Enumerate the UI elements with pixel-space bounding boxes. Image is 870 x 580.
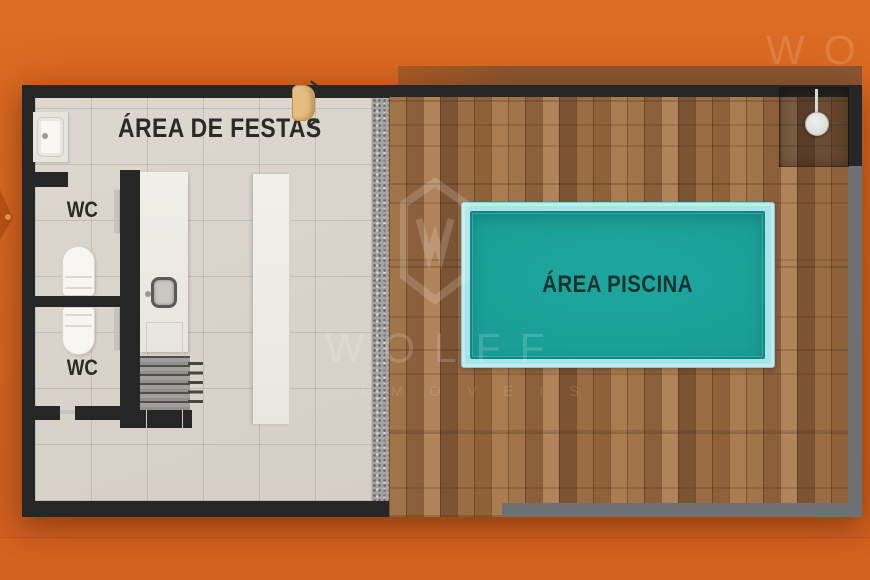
kitchen-sink-icon <box>151 277 177 308</box>
wc2-label: WC <box>52 355 112 381</box>
deck-top-ledge-shadow <box>398 66 862 87</box>
wc-divider-wall <box>22 296 135 307</box>
pool-area-label: ÁREA PISCINA <box>472 213 763 357</box>
washbasin-icon <box>37 117 64 157</box>
door-leaf <box>114 190 119 233</box>
stairs <box>140 356 190 410</box>
wall-stub <box>22 172 68 187</box>
dining-chair <box>292 85 315 121</box>
background-dot-decor <box>5 214 11 220</box>
wc1-label: WC <box>52 197 112 223</box>
floor-plan-canvas: ÁREA DE FESTAS WC WC ÁREA PISCINA <box>0 0 870 580</box>
dining-table <box>253 174 290 424</box>
floor-plan: ÁREA DE FESTAS WC WC ÁREA PISCINA <box>22 85 862 517</box>
kitchen-wall <box>120 170 140 428</box>
pool-water: ÁREA PISCINA <box>470 211 765 359</box>
door-leaf <box>60 410 75 414</box>
gravel-strip <box>372 98 389 501</box>
deck-right-wall <box>848 166 862 517</box>
shower-head-icon <box>805 112 829 136</box>
toilet-icon <box>62 246 95 296</box>
toilet-icon <box>62 307 95 355</box>
background-bottom-band <box>0 537 870 580</box>
deck-bottom-wall <box>502 503 848 517</box>
door-leaf <box>114 308 119 350</box>
stair-handrail-bars <box>188 362 203 404</box>
party-area-label: ÁREA DE FESTAS <box>120 112 320 144</box>
kitchen-counter <box>140 172 188 352</box>
swimming-pool: ÁREA PISCINA <box>461 202 775 368</box>
shower-pipe <box>815 89 818 113</box>
wc-bottom-wall <box>22 406 60 420</box>
